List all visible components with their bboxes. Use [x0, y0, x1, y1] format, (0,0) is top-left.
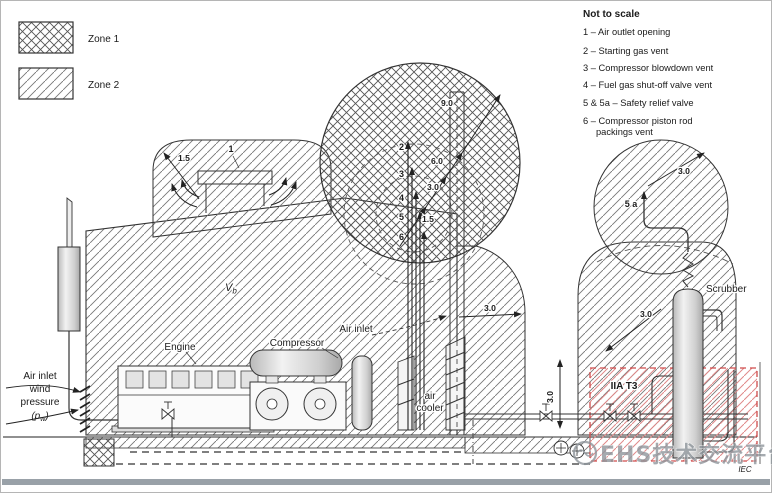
svg-text:3.0: 3.0	[640, 309, 652, 319]
zone1-label: Zone 1	[88, 34, 120, 45]
compressor-label: Compressor	[270, 338, 325, 349]
svg-text:Air inlet: Air inlet	[339, 324, 373, 335]
not-to-scale: Not to scale	[583, 9, 640, 20]
compressor	[250, 348, 372, 430]
note-item-6: 6 – Compressor piston rod	[583, 116, 693, 126]
iec-mark: IEC	[738, 465, 752, 474]
gas-group-label: IIA T3	[611, 381, 638, 392]
radius-9-0-label: 9.0	[441, 98, 453, 108]
svg-text:pressure: pressure	[21, 397, 60, 408]
radius-3-0-label: 3.0	[427, 182, 439, 192]
radius-6-0-label: 6.0	[431, 156, 443, 166]
note-item-5: 5 & 5a – Safety relief valve	[583, 98, 694, 108]
roof-radius-label: 1.5	[178, 153, 190, 163]
engine-label: Engine	[164, 342, 196, 353]
vent-5-label: 5	[399, 212, 404, 222]
pulsation-bottle	[352, 356, 372, 430]
vent-3-label: 3	[399, 169, 404, 179]
zone2-label: Zone 2	[88, 80, 120, 91]
vent-1-label: 1	[228, 144, 233, 154]
diagram-canvas: IIA T3	[0, 0, 772, 493]
zone1-swatch	[19, 22, 73, 53]
svg-text:3.0: 3.0	[678, 166, 690, 176]
svg-text:cooler: cooler	[416, 403, 444, 414]
svg-text:air: air	[424, 391, 436, 402]
vent-4-label: 4	[399, 193, 404, 203]
note-item-1: 1 – Air outlet opening	[583, 27, 670, 37]
radius-1-5-label: 1.5	[422, 214, 434, 224]
note-item-2: 2 – Starting gas vent	[583, 46, 669, 56]
vent-5a-label: 5 a	[625, 199, 639, 209]
zone2-swatch	[19, 68, 73, 99]
zone1-pit	[84, 439, 114, 466]
note-item-4: 4 – Fuel gas shut-off valve vent	[583, 80, 712, 90]
bottom-bar	[2, 479, 770, 485]
svg-text:3.0: 3.0	[545, 391, 555, 403]
scrubber-label: Scrubber	[706, 284, 747, 295]
hazardous-area-diagram: IIA T3	[0, 0, 772, 493]
note-item-6b: packings vent	[596, 127, 653, 137]
vent-2-label: 2	[399, 142, 404, 152]
note-item-3: 3 – Compressor blowdown vent	[583, 63, 714, 73]
east-zone2-region	[457, 246, 525, 435]
svg-text:3.0: 3.0	[484, 303, 496, 313]
svg-text:Air inlet: Air inlet	[23, 371, 57, 382]
